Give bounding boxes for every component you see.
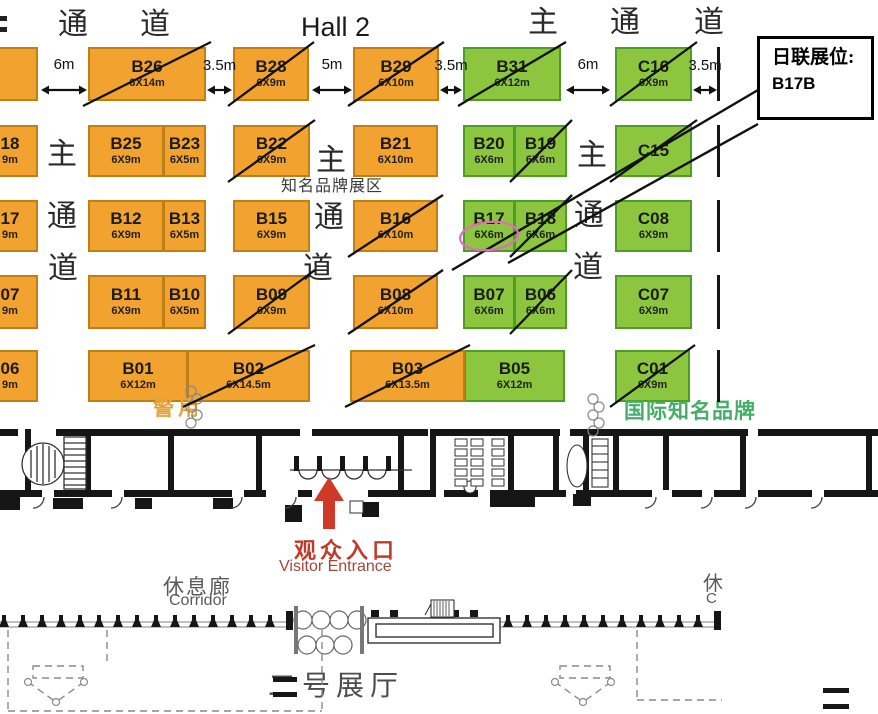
visitor-entrance-arrow [314,477,344,529]
header-aisle-label: 道 [140,10,170,40]
booth-size: 6X9m [111,305,140,318]
booth-size: 6X9m [639,229,668,242]
booth-id: B21 [380,135,411,154]
booth-id: B08 [380,286,411,305]
aisle-label: 主 [47,140,77,170]
booth-C08: C086X9m [615,200,692,252]
booth-size: 6X6m [474,229,503,242]
booth-B06: B066X6m [515,275,567,329]
booth-size: 6X9m [257,229,286,242]
booth-size: 6X9m [111,154,140,167]
booth-size: 6X6m [526,154,555,167]
arrow-right-head [344,86,352,95]
edge-booth-id: 06 [1,360,20,379]
column-tick [655,615,665,627]
distance-label: 5m [310,57,354,72]
booth-id: B03 [392,360,423,379]
booth-B08: B086X10m [353,275,438,329]
column-tick [503,615,513,627]
hall-title: Hall 2 [301,12,370,43]
booth-size: 6X10m [378,305,413,318]
header-aisle-label: 道 [694,8,724,38]
booth-B10: B106X5m [164,275,206,329]
booth-size: 6X12m [494,77,529,90]
stall [492,439,504,446]
booth-id: B15 [256,210,287,229]
edge-booth-size: 9m [2,379,18,392]
booth-C16: C166X9m [615,47,692,101]
header-aisle-label: 通 [58,10,88,40]
column-tick [579,615,589,627]
booth-B02: B026X14.5m [188,350,310,402]
booth-size: 6X12m [497,379,532,392]
booth-B01: B016X12m [88,350,188,402]
booth-size: 6X14m [129,77,164,90]
column-tick [598,615,608,627]
entrance-doors [290,470,412,479]
entrance-kiosk [350,501,363,513]
booth-id: B07 [473,286,504,305]
aisle-label: 主 [316,146,346,176]
column-tick [246,615,256,627]
aisle-label: 道 [573,253,603,283]
aisle-label: 通 [574,201,604,231]
booth-C15: C15 [615,125,692,177]
header-aisle-label: 主 [528,8,558,38]
escalator [425,600,454,617]
entrance-posts [294,456,391,471]
walls [0,429,878,522]
edge-booth-id: 07 [1,286,20,305]
booth-id: B09 [256,286,287,305]
stall [471,449,483,456]
booth-B31: B316X12m [463,47,561,101]
column-tick [94,615,104,627]
booth-B18: B186X6m [515,200,567,252]
stall [492,459,504,466]
column-tick [113,615,123,627]
booth-size: 6X10m [378,229,413,242]
booth-size: 6X5m [170,229,199,242]
booth-id: B16 [380,210,411,229]
booth-B19: B196X6m [515,125,567,177]
aisle-label: 通 [314,203,344,233]
booth-B05: B056X12m [465,350,565,402]
stall [492,469,504,476]
hall-2-bottom-label: 二号展厅 [268,664,404,704]
stall [455,449,467,456]
stall [471,479,483,486]
booth-B21: B216X10m [353,125,438,177]
arrow-right-head [224,86,232,95]
booth-size: 6X14.5m [226,379,271,392]
desk-markers [371,610,478,617]
booth-id: B18 [525,210,556,229]
booth-id: B06 [525,286,556,305]
distance-label: 3.5m [683,58,727,73]
column-tick [636,615,646,627]
column-tick [617,615,627,627]
column-tick [208,615,218,627]
arrow-left-head [693,86,701,95]
booth-id: B28 [255,58,286,77]
booth-id: B23 [169,135,200,154]
callout-box: 日联展位: B17B [757,36,874,120]
booth-B17: B176X6m [463,200,515,252]
booth-B28: B286X9m [233,47,309,101]
aisle-label: 道 [48,254,78,284]
revolving-doors [294,606,366,654]
column-tick [151,615,161,627]
edge-booth-3: 079m [0,275,38,329]
booth-id: B02 [233,360,264,379]
callout-booth-number: B17B [772,71,869,97]
booth-size: 6X9m [256,77,285,90]
booth-B26: B266X14m [88,47,206,101]
stall [455,479,467,486]
booth-B22: B226X9m [233,125,310,177]
column-tick [265,615,275,627]
column-tick [560,615,570,627]
column-tick [693,615,703,627]
edge-booth-size: 9m [2,229,18,242]
booth-size: 6X9m [111,229,140,242]
colonnade [0,622,720,627]
stairwell-left [22,437,86,489]
booth-size: 6X6m [526,229,555,242]
arrow-right-head [709,86,717,95]
booth-id: B01 [122,360,153,379]
edge-booth-2: 179m [0,200,38,252]
booth-size: 6X9m [639,305,668,318]
booth-id: C01 [637,360,668,379]
booth-size: 6X10m [378,77,413,90]
booth-size: 6X13.5m [385,379,430,392]
booth-B11: B116X9m [88,275,164,329]
booth-size: 6X10m [378,154,413,167]
booth-size: 6X9m [638,379,667,392]
corridor-right-partial-en: C [706,590,717,607]
zone-label: 国际知名品牌 [624,400,758,423]
booth-size: 6X5m [170,305,199,318]
booth-B03: B036X13.5m [350,350,465,402]
booth-id: C16 [638,58,669,77]
edge-booth-id: 17 [1,210,20,229]
visitor-entrance-label-en: Visitor Entrance [279,558,392,576]
edge-booth-1: 189m [0,125,38,177]
aisle-label: 主 [577,141,607,171]
booth-C01: C016X9m [615,350,690,402]
edge-booth-0 [0,47,38,101]
distance-label: 3.5m [429,58,473,73]
aisle-label: 通 [47,202,77,232]
stall [455,439,467,446]
booth-B20: B206X6m [463,125,515,177]
booth-id: B20 [473,135,504,154]
arrow-right-head [454,86,462,95]
edge-fragments [0,16,7,32]
arrow-left-head [566,86,574,95]
column-tick [674,615,684,627]
booth-id: C07 [638,286,669,305]
booth-id: B29 [380,58,411,77]
column-tick [227,615,237,627]
booth-size: 6X5m [170,154,199,167]
booth-B13: B136X5m [164,200,206,252]
booth-id: B17 [473,210,504,229]
booth-B07: B076X6m [463,275,515,329]
column-tick [37,615,47,627]
restrooms [464,439,608,493]
door-arcs [33,497,822,508]
booth-B16: B166X10m [353,200,438,252]
hall2-floorplan: Hall 2 [0,0,878,714]
booth-id: B12 [110,210,141,229]
stall [455,459,467,466]
stall [455,469,467,476]
booth-B29: B296X10m [353,47,439,101]
column-tick [132,615,142,627]
distance-label: 6m [566,57,610,72]
column-tick [75,615,85,627]
header-aisle-label: 通 [610,8,640,38]
booth-size: 6X9m [257,305,286,318]
column-tick [170,615,180,627]
column-tick [0,615,9,627]
booth-B23: B236X5m [164,125,206,177]
arrow-left-head [312,86,320,95]
zone-label: 警用 [153,397,203,420]
hall-boundary-lines [717,47,720,402]
booth-id: B19 [525,135,556,154]
info-desk [368,618,500,643]
booth-size: 6X12m [120,379,155,392]
booth-id: C15 [638,142,669,161]
booth-id: C08 [638,210,669,229]
booth-id: B25 [110,135,141,154]
booth-C07: C076X9m [615,275,692,329]
booth-size: 6X9m [257,154,286,167]
booth-B09: B096X9m [233,275,310,329]
aisle-label: 道 [303,254,333,284]
booth-B12: B126X9m [88,200,164,252]
arrow-right-head [602,86,610,95]
arrow-right-head [79,86,87,95]
zone-label: 知名品牌展区 [281,178,383,196]
colonnade-endposts [286,611,721,630]
column-tick [541,615,551,627]
booth-size: 6X6m [526,305,555,318]
booth-size: 6X6m [474,154,503,167]
column-tick [56,615,66,627]
booth-id: B10 [169,286,200,305]
booth-id: B26 [131,58,162,77]
column-tick [189,615,199,627]
arrow-left-head [440,86,448,95]
edge-booth-size: 9m [2,154,18,167]
stall [471,469,483,476]
edge-booth-size: 9m [2,305,18,318]
edge-booth-id: 18 [1,135,20,154]
column-tick [18,615,28,627]
stall [492,449,504,456]
booth-id: B22 [256,135,287,154]
callout-title: 日联展位: [772,46,869,71]
booth-id: B05 [499,360,530,379]
booth-B25: B256X9m [88,125,164,177]
column-tick [522,615,532,627]
stall [471,439,483,446]
booth-B15: B156X9m [233,200,310,252]
arrow-left-head [41,86,49,95]
arrow-left-head [207,86,215,95]
booth-id: B31 [496,58,527,77]
edge-booth-4: 069m [0,350,38,402]
booth-id: B11 [111,286,141,305]
booth-size: 6X6m [474,305,503,318]
stall [471,459,483,466]
stall [492,479,504,486]
distance-label: 3.5m [198,58,242,73]
booth-id: B13 [169,210,200,229]
booth-size: 6X9m [639,77,668,90]
distance-label: 6m [42,57,86,72]
corridor-label-en: Corridor [169,592,227,610]
